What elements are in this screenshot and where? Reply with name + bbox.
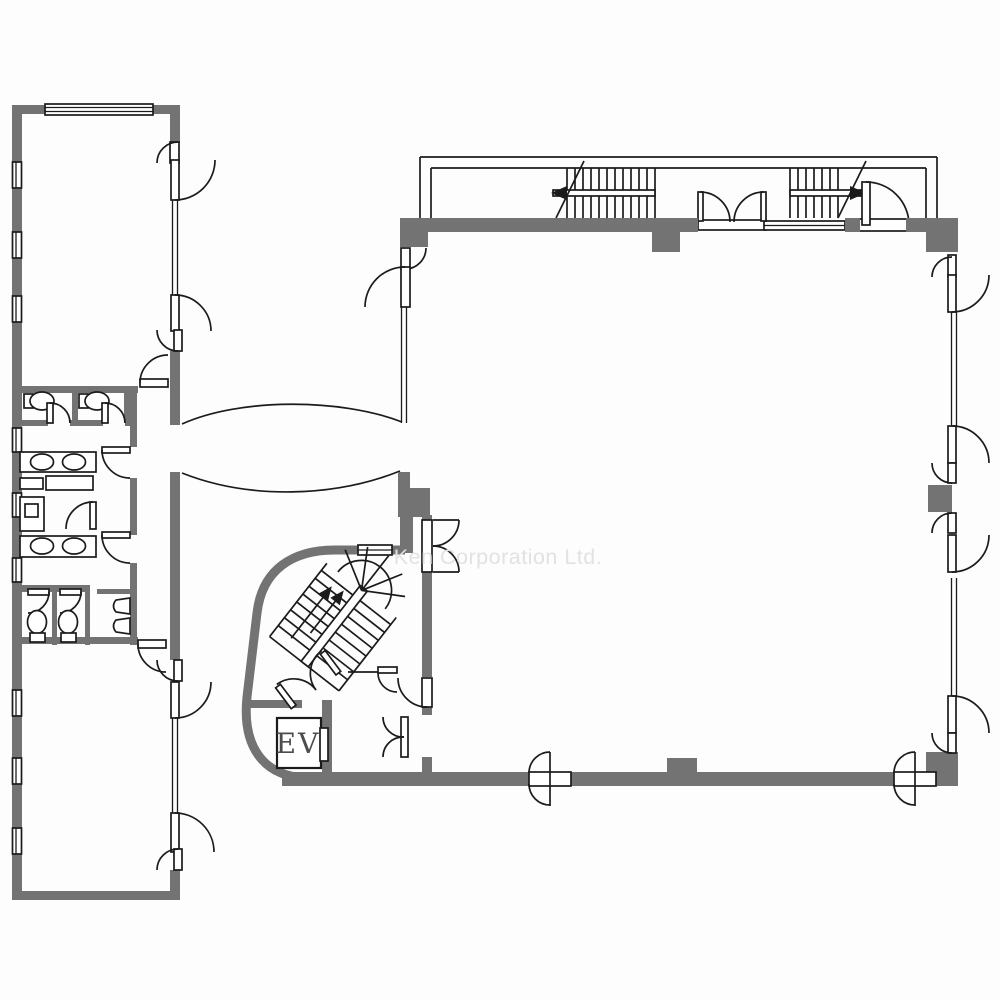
stall-door-icon [102,403,125,423]
pivot-window-icon [529,752,571,806]
main-room [282,218,989,806]
main-room-walls [282,218,958,786]
restroom-block [12,392,137,645]
column [400,218,428,247]
door-icon [138,640,166,672]
upper-room-doors [140,142,215,387]
stall-door-icon [60,589,81,613]
utility-fixtures [20,476,96,531]
door-icon [157,660,182,681]
glazing [952,312,957,426]
core-top-window [358,545,392,555]
door-icon [171,160,215,200]
door-icon [932,255,956,277]
column [928,485,952,512]
connecting-bridge [182,404,430,553]
double-door-icon [383,717,408,757]
glazing [402,307,407,423]
door-icon [157,330,182,351]
window-icon [13,758,22,784]
stair-flight-right [790,161,866,218]
floor-plan: EV Ken Corporation Ltd. [0,0,1000,1000]
left-wing [12,104,215,900]
door-icon [102,447,130,478]
door-icon [401,248,426,269]
door-icon [171,813,214,852]
door-icon [932,463,956,483]
toilet-icon [28,611,47,643]
sink-counter [20,452,96,472]
urinal-icon [114,598,131,614]
up-arrow-icon [551,186,567,200]
door-icon [140,355,168,387]
west-facade [365,248,426,423]
door-icon [378,667,397,692]
door-icon [948,426,989,463]
door-icon [932,733,956,753]
door-icon [171,682,211,718]
elevator-label: EV [276,727,321,760]
door-icon [102,532,130,563]
window-icon [13,558,22,582]
floor-plan-page: EV Ken Corporation Ltd. [0,0,1000,1000]
watermark: Ken Corporation Ltd. [394,545,602,569]
window-icon [13,828,22,854]
window-top [45,104,153,115]
window-icon [13,690,22,716]
glazing [952,578,957,696]
corridor-double-door [698,192,845,230]
sink-counter [20,536,96,557]
glazing [173,200,178,295]
toilet-icon [59,611,78,643]
window-icon [13,232,22,258]
door-icon [948,696,989,733]
door-icon [932,513,956,533]
door-icon [398,678,432,707]
door-icon [948,535,989,572]
door-icon [157,849,182,870]
door-icon [365,267,410,307]
core-lobby-doors [348,667,432,757]
column [667,758,697,772]
stair-flight-left [551,161,655,218]
stall-door-icon [47,403,70,423]
lower-room-doors [138,640,214,870]
glazing [173,718,178,813]
window-icon [13,296,22,322]
urinal-icon [114,618,131,634]
window-icon [13,162,22,188]
corridor-end-door [859,182,909,231]
column [926,218,958,252]
door-icon [171,295,211,331]
door-icon [948,275,989,312]
window-icon [13,428,22,452]
elevator: EV [276,718,328,768]
stall-door-icon [28,589,49,613]
elevator-door [320,728,328,761]
column [652,232,680,252]
